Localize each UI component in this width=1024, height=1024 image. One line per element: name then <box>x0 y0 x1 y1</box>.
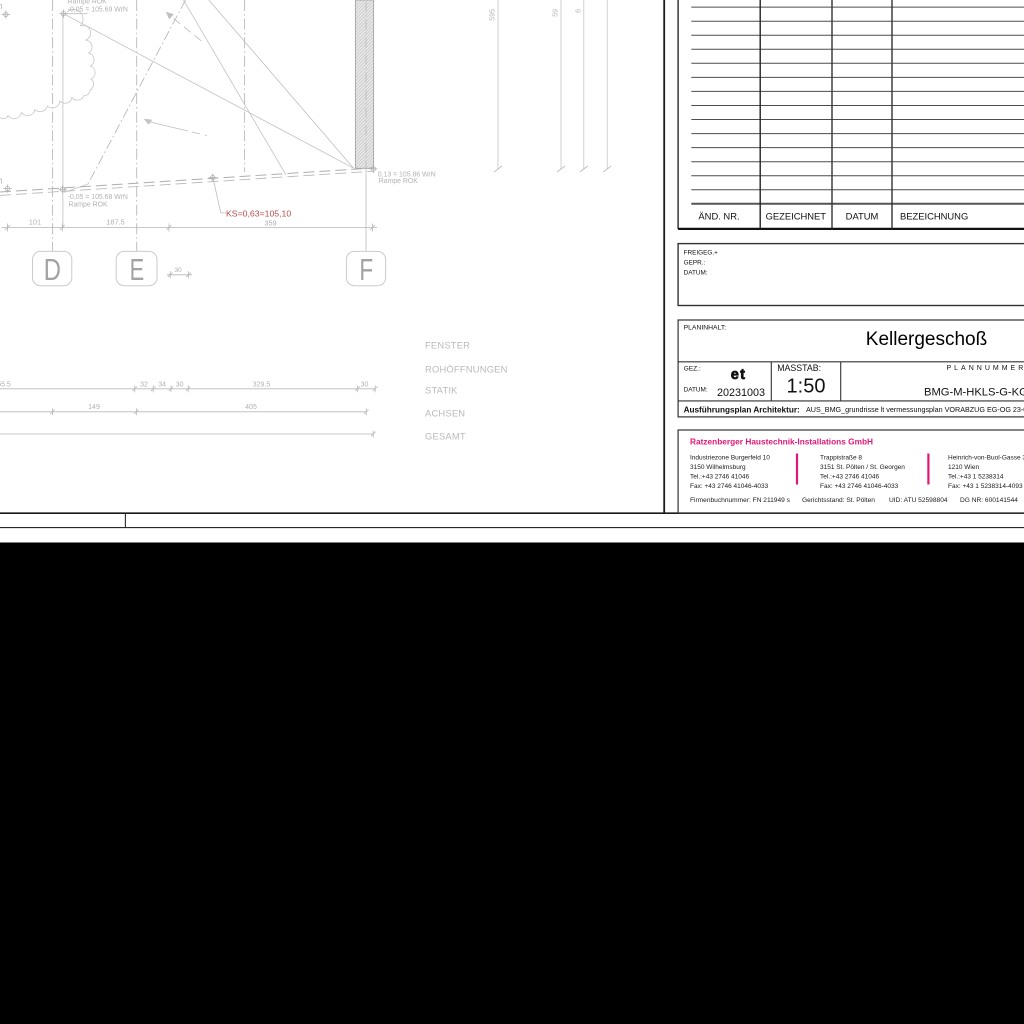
svg-text:ACHSEN: ACHSEN <box>425 407 465 418</box>
svg-text:3151 St. Pölten / St. Georgen: 3151 St. Pölten / St. Georgen <box>820 464 905 471</box>
svg-text:101: 101 <box>29 218 41 227</box>
svg-text:ÄND. NR.: ÄND. NR. <box>698 211 739 222</box>
svg-text:-0,05 = 105.69 WrN: -0,05 = 105.69 WrN <box>68 7 128 14</box>
svg-text:59: 59 <box>553 9 560 17</box>
svg-text:1210 Wien: 1210 Wien <box>948 464 979 471</box>
svg-text:34: 34 <box>158 381 166 388</box>
svg-text:1:50: 1:50 <box>787 376 826 398</box>
svg-text:DATUM:: DATUM: <box>684 387 708 394</box>
svg-text:Fax: +43 1 5238314-4093: Fax: +43 1 5238314-4093 <box>948 483 1023 490</box>
svg-text:UID: ATU 52598804: UID: ATU 52598804 <box>889 497 948 504</box>
svg-text:Tel.:+43 2746 41046: Tel.:+43 2746 41046 <box>820 474 879 481</box>
svg-text:DATUM: DATUM <box>846 211 879 222</box>
svg-text:Fax: +43 2746 41046-4033: Fax: +43 2746 41046-4033 <box>690 483 769 490</box>
svg-text:32: 32 <box>140 381 148 388</box>
svg-text:AUS_BMG_grundrisse lt vermessu: AUS_BMG_grundrisse lt vermessungsplan VO… <box>806 405 1024 414</box>
svg-text:6: 6 <box>575 9 582 13</box>
svg-text:E: E <box>130 252 145 287</box>
svg-text:-0,05 = 105.68 WrN: -0,05 = 105.68 WrN <box>68 194 128 201</box>
svg-text:PLANNUMMER: PLANNUMMER <box>947 365 1024 372</box>
svg-text:MASSTAB:: MASSTAB: <box>777 363 821 373</box>
svg-text:Industriezone Burgerfeld 10: Industriezone Burgerfeld 10 <box>690 454 770 461</box>
svg-text:Trappistraße 8: Trappistraße 8 <box>820 454 862 461</box>
svg-text:595: 595 <box>490 9 497 21</box>
svg-text:329.5: 329.5 <box>253 381 271 388</box>
svg-text:30: 30 <box>174 267 182 274</box>
svg-text:55.5: 55.5 <box>0 381 11 388</box>
svg-text:KS=0,63=105,10: KS=0,63=105,10 <box>226 209 291 219</box>
svg-text:Fax: +43 2746 41046-4033: Fax: +43 2746 41046-4033 <box>820 483 899 490</box>
svg-text:ROHÖFFNUNGEN: ROHÖFFNUNGEN <box>425 363 508 374</box>
svg-text:FREIGEG.+: FREIGEG.+ <box>684 249 719 256</box>
svg-text:GESAMT: GESAMT <box>425 430 466 441</box>
svg-text:Tel.:+43 1 5238314: Tel.:+43 1 5238314 <box>948 474 1004 481</box>
svg-text:Tel.:+43 2746 41046: Tel.:+43 2746 41046 <box>690 474 749 481</box>
svg-text:359: 359 <box>264 218 276 227</box>
svg-text:GEZ.:: GEZ.: <box>684 366 701 373</box>
svg-text:Gerichtsstand: St. Pölten: Gerichtsstand: St. Pölten <box>802 497 875 504</box>
svg-text:Rampe ROK: Rampe ROK <box>69 202 108 209</box>
svg-text:PLANINHALT:: PLANINHALT: <box>684 325 727 332</box>
svg-text:Firmenbuchnummer: FN 211949 s: Firmenbuchnummer: FN 211949 s <box>690 497 791 504</box>
svg-text:405: 405 <box>245 404 257 411</box>
svg-text:DATUM:: DATUM: <box>684 269 708 276</box>
svg-text:Heinrich-von-Buol-Gasse 3: Heinrich-von-Buol-Gasse 3 <box>948 454 1024 461</box>
svg-text:Kellergeschoß: Kellergeschoß <box>866 329 987 350</box>
svg-text:30: 30 <box>176 381 184 388</box>
svg-text:Rampe ROK: Rampe ROK <box>68 0 107 5</box>
svg-text:Ausführungsplan Architektur:: Ausführungsplan Architektur: <box>684 406 800 415</box>
svg-text:149: 149 <box>88 404 100 411</box>
svg-text:DG NR: 600141544: DG NR: 600141544 <box>960 497 1018 504</box>
svg-text:FENSTER: FENSTER <box>425 339 470 350</box>
svg-text:STATIK: STATIK <box>425 384 458 395</box>
svg-text:GEPR.:: GEPR.: <box>684 259 706 266</box>
svg-text:BMG-M-HKLS-G-KG: BMG-M-HKLS-G-KG <box>924 387 1024 399</box>
svg-text:187.5: 187.5 <box>106 218 125 227</box>
svg-text:BEZEICHNUNG: BEZEICHNUNG <box>900 211 968 222</box>
svg-text:Ratzenberger Haustechnik-Insta: Ratzenberger Haustechnik-Installations G… <box>690 437 873 447</box>
svg-text:D: D <box>44 252 61 287</box>
svg-text:GEZEICHNET: GEZEICHNET <box>766 211 827 222</box>
svg-text:et: et <box>731 367 746 383</box>
svg-text:20231003: 20231003 <box>717 387 765 399</box>
svg-text:3150 Wilhelmsburg: 3150 Wilhelmsburg <box>690 464 746 471</box>
svg-text:30: 30 <box>361 381 369 388</box>
svg-text:Rampe ROK: Rampe ROK <box>379 178 418 185</box>
svg-text:F: F <box>359 252 373 287</box>
